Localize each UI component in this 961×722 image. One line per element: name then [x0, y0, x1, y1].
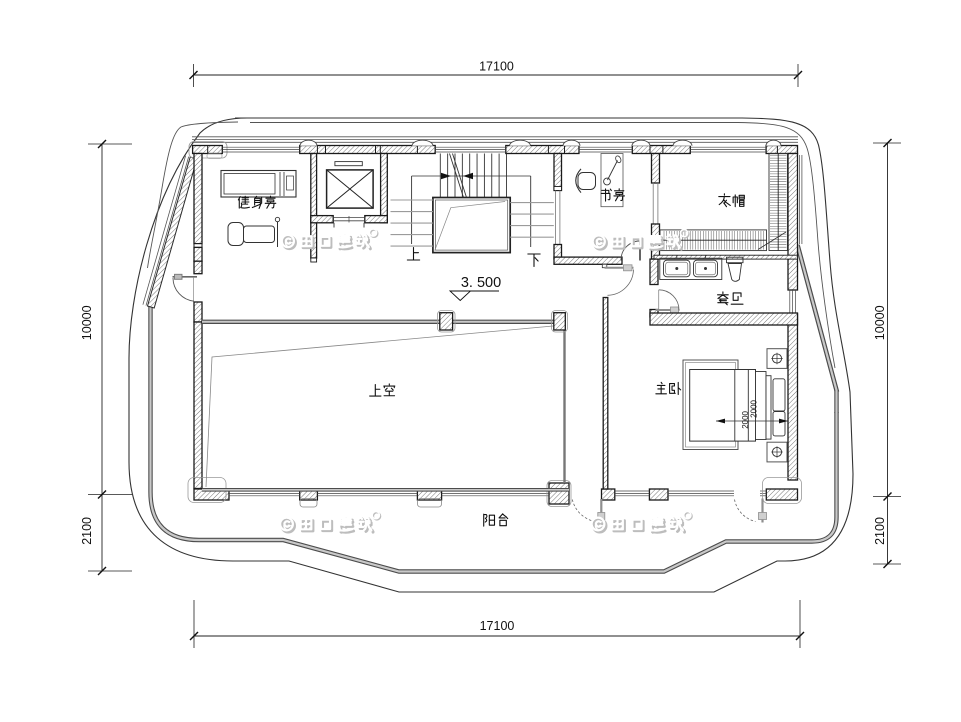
svg-text:2100: 2100 — [873, 517, 887, 545]
svg-text:17100: 17100 — [480, 619, 515, 633]
svg-text:10000: 10000 — [80, 305, 94, 340]
svg-text:2000: 2000 — [741, 410, 750, 428]
svg-text:2100: 2100 — [80, 517, 94, 545]
svg-text:17100: 17100 — [479, 60, 514, 74]
svg-text:2000: 2000 — [750, 399, 759, 417]
svg-text:10000: 10000 — [873, 305, 887, 340]
svg-text:3. 500: 3. 500 — [461, 275, 501, 291]
